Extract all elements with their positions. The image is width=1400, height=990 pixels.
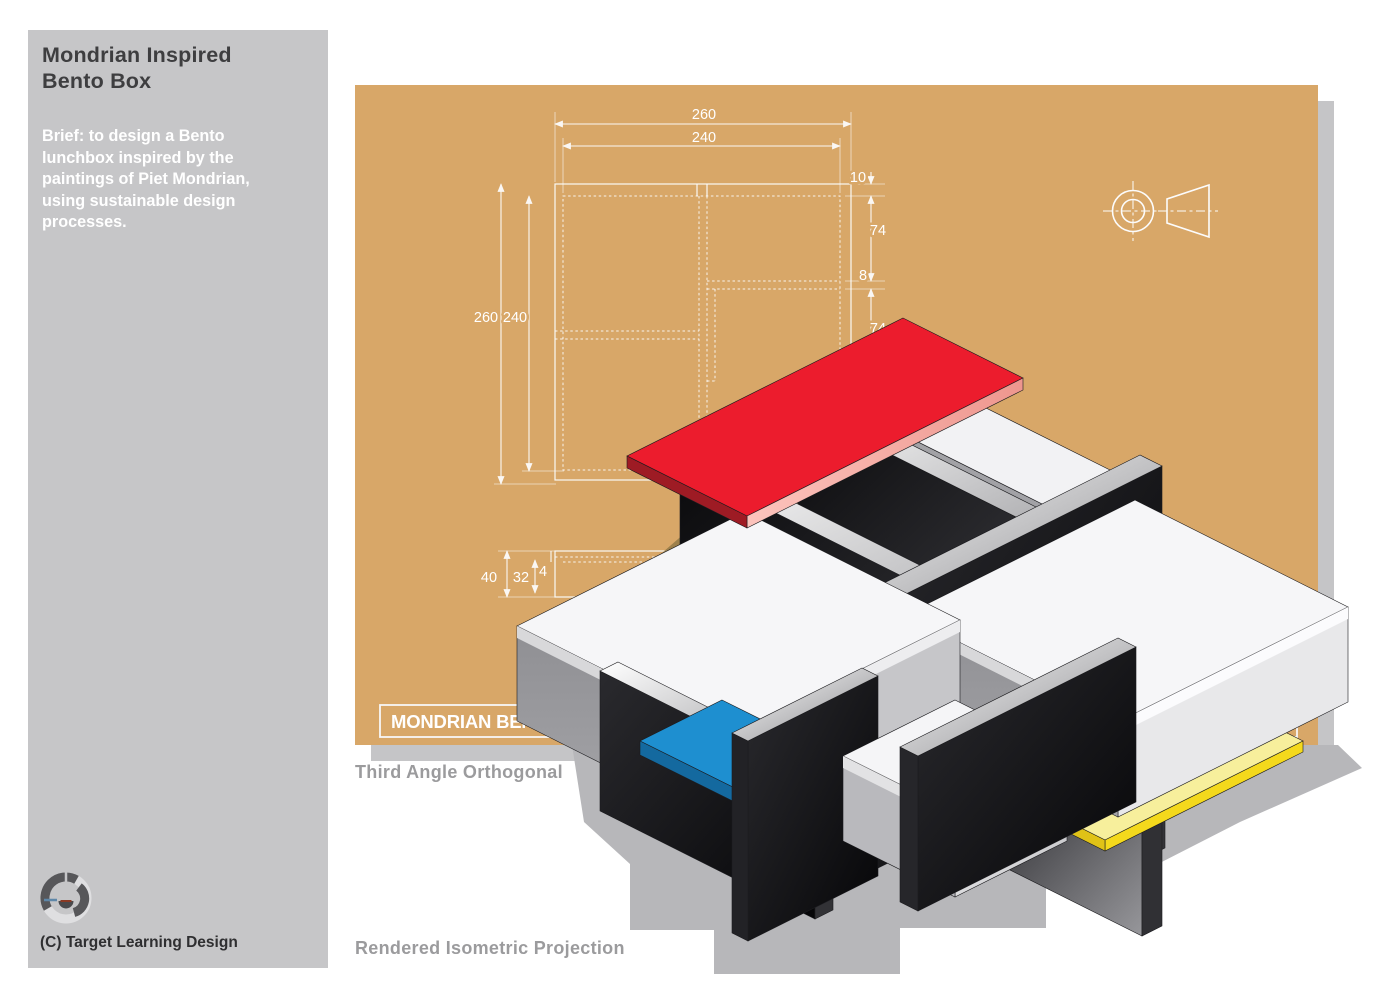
sidebar: Mondrian Inspired Bento Box Brief: to de… — [28, 30, 328, 968]
dim-top-outer: 260 — [692, 107, 716, 123]
dim-right-upper: 74 — [870, 223, 886, 239]
dim-right-wall: 8 — [859, 268, 867, 284]
caption-isometric: Rendered Isometric Projection — [355, 938, 625, 959]
dim-side-depth: 40 — [481, 570, 497, 586]
page: 260 240 260 240 10 74 8 74 — [0, 0, 1400, 990]
dim-side-inner: 32 — [513, 570, 529, 586]
dim-right-lip: 10 — [850, 170, 866, 186]
brief-text: Brief: to design a Bento lunchbox inspir… — [42, 126, 294, 234]
page-title: Mondrian Inspired Bento Box — [42, 42, 302, 94]
caption-orthogonal: Third Angle Orthogonal — [355, 762, 563, 783]
dim-top-inner: 240 — [692, 130, 716, 146]
dim-left-inner: 240 — [503, 310, 527, 326]
dim-left-outer: 260 — [474, 310, 498, 326]
copyright-text: (C) Target Learning Design — [40, 934, 238, 952]
dim-side-lip: 4 — [539, 564, 547, 580]
target-logo-icon — [38, 870, 94, 926]
